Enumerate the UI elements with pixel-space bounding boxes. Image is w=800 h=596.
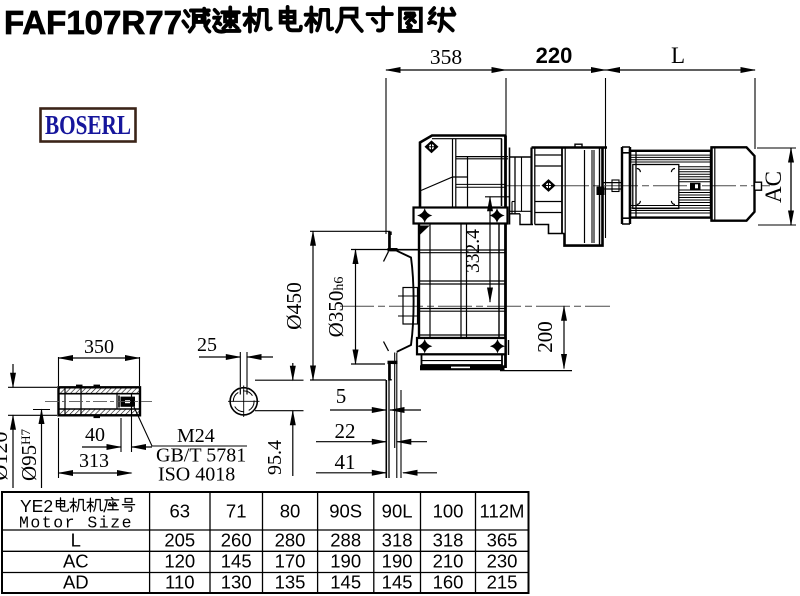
svg-text:170: 170 [275, 551, 306, 572]
svg-text:313: 313 [79, 450, 109, 472]
svg-text:135: 135 [275, 572, 306, 593]
svg-text:25: 25 [197, 334, 217, 356]
svg-text:100: 100 [433, 501, 464, 522]
svg-text:220: 220 [536, 43, 573, 68]
svg-text:205: 205 [164, 530, 195, 551]
svg-text:22: 22 [335, 419, 356, 443]
svg-text:L: L [71, 530, 81, 551]
svg-text:145: 145 [221, 551, 252, 572]
svg-text:332.4: 332.4 [463, 229, 484, 273]
svg-text:280: 280 [275, 530, 306, 551]
svg-text:Ø120: Ø120 [0, 432, 12, 481]
svg-text:215: 215 [487, 572, 518, 593]
svg-text:318: 318 [433, 530, 464, 551]
svg-text:ISO 4018: ISO 4018 [158, 464, 235, 486]
svg-text:L: L [671, 43, 685, 68]
svg-text:5: 5 [336, 384, 347, 408]
svg-text:63: 63 [170, 501, 191, 522]
svg-text:318: 318 [382, 530, 413, 551]
svg-text:145: 145 [330, 572, 361, 593]
svg-text:260: 260 [221, 530, 252, 551]
svg-text:112M: 112M [480, 501, 525, 522]
svg-text:90S: 90S [329, 501, 362, 522]
svg-text:AC: AC [761, 171, 786, 203]
svg-text:110: 110 [165, 572, 195, 593]
svg-text:71: 71 [226, 501, 247, 522]
svg-text:120: 120 [164, 551, 195, 572]
svg-text:358: 358 [430, 45, 462, 69]
svg-text:145: 145 [382, 572, 413, 593]
svg-text:80: 80 [280, 501, 301, 522]
svg-text:41: 41 [335, 450, 356, 474]
svg-text:200: 200 [533, 321, 557, 353]
svg-text:FAF107R77: FAF107R77 [4, 4, 182, 41]
svg-text:350: 350 [84, 336, 114, 358]
svg-text:AC: AC [63, 551, 89, 572]
svg-text:210: 210 [433, 551, 464, 572]
svg-text:160: 160 [433, 572, 464, 593]
svg-text:365: 365 [487, 530, 518, 551]
svg-text:230: 230 [487, 551, 518, 572]
svg-text:130: 130 [221, 572, 252, 593]
svg-text:288: 288 [330, 530, 361, 551]
svg-text:40: 40 [85, 424, 105, 446]
svg-text:AD: AD [63, 572, 89, 593]
svg-text:BOSERL: BOSERL [45, 110, 131, 140]
svg-text:190: 190 [330, 551, 361, 572]
svg-text:90L: 90L [382, 501, 413, 522]
svg-text:190: 190 [382, 551, 413, 572]
svg-text:Ø450: Ø450 [282, 282, 306, 330]
svg-text:95.4: 95.4 [264, 440, 286, 475]
